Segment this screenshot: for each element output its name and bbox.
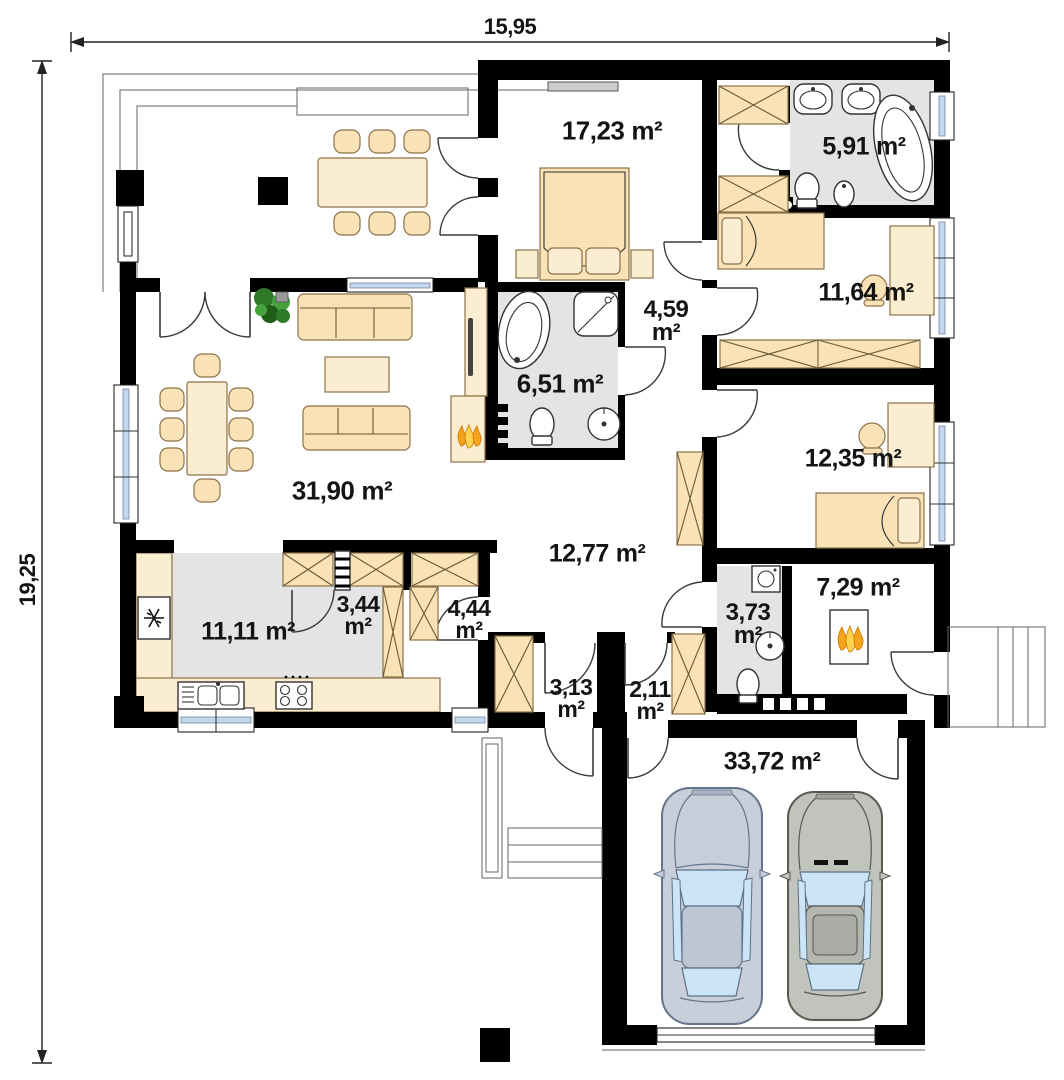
coffee-table <box>325 357 389 392</box>
porch-pillar-base <box>480 1028 510 1062</box>
kitchen-sink <box>178 682 244 709</box>
toilet <box>795 173 819 208</box>
room-label-bedroom1: 17,23m² <box>562 116 662 147</box>
dimension-height-label: 19,25 <box>15 554 41 607</box>
single-bed <box>718 213 824 269</box>
nightstand <box>631 250 653 278</box>
single-bed <box>816 493 924 548</box>
wardrobe-x <box>677 452 703 545</box>
pillow <box>586 248 620 274</box>
pillow <box>548 248 582 274</box>
window-slit-west <box>118 206 138 262</box>
room-label-hall1: 4,59m² <box>644 299 689 345</box>
wardrobe-x <box>495 636 533 712</box>
floor-plan-page: 15,95 19,25 17,23m² 5,91m² 11,64m² 4,59m… <box>0 0 1064 1080</box>
window-small-south <box>452 708 488 732</box>
room-label-corridor: 12,77m² <box>549 540 646 569</box>
bidet <box>834 181 854 207</box>
shower <box>574 292 618 336</box>
side-mirror <box>780 872 790 880</box>
sink <box>588 408 620 440</box>
side-mirror <box>760 870 770 878</box>
wardrobe-x <box>720 340 818 368</box>
car-left <box>654 788 770 1024</box>
window-living-west <box>114 385 138 523</box>
car-right <box>780 792 890 1020</box>
wardrobe-x <box>719 86 788 124</box>
fireplace-icon <box>451 396 485 462</box>
wall-shelf <box>548 82 618 91</box>
room-label-boiler: 7,29m² <box>816 574 899 603</box>
room-label-bedroom3: 12,35m² <box>805 445 902 474</box>
room-label-wc: 3,73m² <box>726 602 771 648</box>
freezer <box>138 597 170 639</box>
window-bathroom1 <box>930 92 954 140</box>
terrace-dining-set <box>318 130 430 235</box>
ladder-icon <box>335 551 350 590</box>
room-label-bathroom1: 5,91m² <box>822 133 905 162</box>
wardrobe-x <box>672 634 705 714</box>
room-label-garage: 33,72m² <box>724 748 821 777</box>
window-kitchen <box>178 708 254 732</box>
room-label-kitchen: 11,11m² <box>201 618 295 647</box>
washing-machine <box>752 566 780 592</box>
wardrobe-x <box>818 340 920 368</box>
room-label-pantry: 3,44m² <box>337 594 380 638</box>
sliding-glass-door <box>347 278 433 292</box>
room-label-bedroom2: 11,64m² <box>818 279 913 308</box>
dining-table-set <box>160 354 253 502</box>
room-label-wardrobe: 4,44m² <box>448 598 491 642</box>
sofa <box>303 406 410 450</box>
room-label-hall2: 3,13m² <box>550 677 593 721</box>
double-bed <box>516 168 653 280</box>
side-mirror <box>654 870 664 878</box>
wardrobe-x <box>283 553 333 586</box>
toilet <box>530 408 554 445</box>
room-label-vestibule: 2,11m² <box>629 679 671 723</box>
wardrobe-x <box>719 176 788 212</box>
side-mirror <box>880 872 890 880</box>
sink <box>794 84 832 114</box>
sofa <box>298 294 412 340</box>
terrace-pillar <box>258 177 288 205</box>
wardrobe-x <box>383 587 403 677</box>
wardrobe-x <box>412 553 478 586</box>
boiler-fixtures <box>830 610 868 664</box>
sink <box>842 84 880 114</box>
bedroom1-furniture <box>516 82 653 280</box>
living-furniture <box>160 288 487 502</box>
wardrobe-x <box>349 553 403 586</box>
nightstand <box>516 250 538 278</box>
tv-icon <box>468 318 473 376</box>
entry-porch-steps <box>482 738 602 878</box>
room-label-living: 31,90m² <box>292 476 392 507</box>
tv-cabinet <box>465 288 487 396</box>
floor-plan-drawing <box>0 0 1064 1080</box>
wardrobe-x <box>410 587 438 640</box>
side-steps-east <box>948 627 1045 727</box>
toilet <box>737 669 759 703</box>
room-label-bathroom2: 6,51m² <box>517 369 603 400</box>
bedroom3-furniture <box>816 403 934 548</box>
plant-icon <box>254 288 290 323</box>
dimension-width-label: 15,95 <box>484 14 537 40</box>
furnace-icon <box>830 610 868 664</box>
